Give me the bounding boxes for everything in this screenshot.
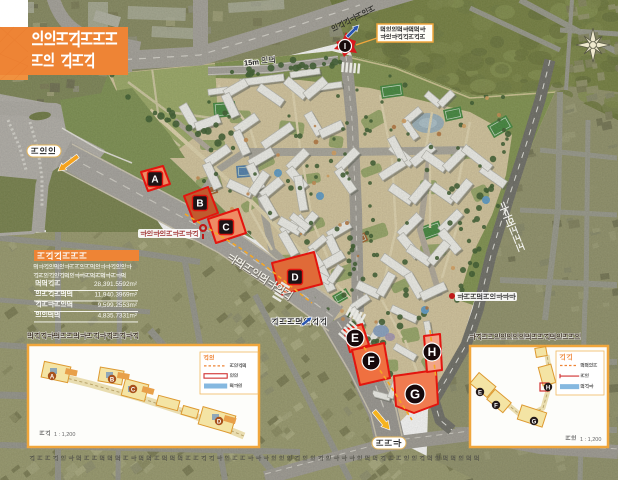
svg-text:A: A bbox=[151, 175, 158, 186]
svg-text:15m: 15m bbox=[244, 57, 260, 67]
svg-text:E: E bbox=[351, 331, 359, 345]
svg-text:F: F bbox=[494, 403, 498, 409]
svg-text:D: D bbox=[291, 273, 298, 284]
svg-text:I: I bbox=[344, 42, 346, 51]
svg-text:G: G bbox=[532, 419, 537, 425]
svg-text:H: H bbox=[428, 345, 437, 359]
svg-text:B: B bbox=[110, 377, 115, 383]
svg-text:E: E bbox=[478, 390, 482, 396]
svg-text:H: H bbox=[546, 385, 550, 391]
svg-text:B: B bbox=[196, 199, 203, 210]
svg-text:4,835.7331m²: 4,835.7331m² bbox=[98, 313, 137, 320]
svg-text:A: A bbox=[50, 374, 55, 380]
svg-text:G: G bbox=[410, 387, 420, 402]
svg-text:1 : 1,200: 1 : 1,200 bbox=[54, 432, 75, 438]
svg-text:D: D bbox=[217, 419, 222, 425]
svg-text:C: C bbox=[222, 223, 229, 234]
svg-text:28,391.5592m²: 28,391.5592m² bbox=[94, 281, 137, 288]
svg-text:9,599.2553m²: 9,599.2553m² bbox=[98, 302, 137, 309]
svg-text:1 : 1,200: 1 : 1,200 bbox=[580, 437, 601, 443]
svg-text:11,940.3969m²: 11,940.3969m² bbox=[94, 292, 137, 299]
svg-text:F: F bbox=[367, 354, 374, 368]
svg-text:C: C bbox=[131, 387, 136, 393]
